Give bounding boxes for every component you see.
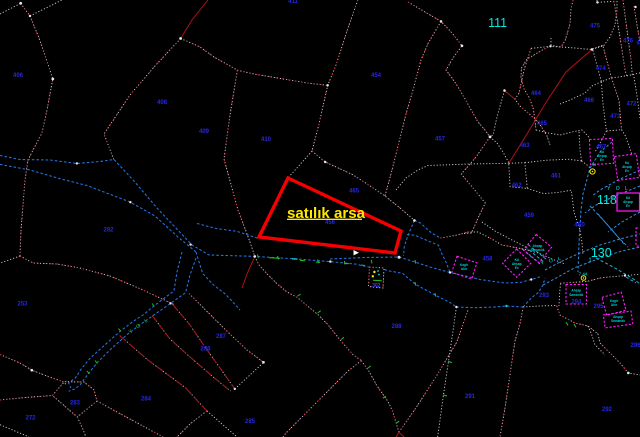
svg-text:288: 288 — [391, 324, 402, 330]
svg-text:285: 285 — [245, 419, 256, 425]
svg-text:295: 295 — [593, 304, 604, 310]
svg-text:111: 111 — [488, 16, 507, 30]
svg-text:467: 467 — [596, 145, 607, 151]
svg-text:454: 454 — [371, 73, 382, 79]
svg-text:408: 408 — [157, 100, 168, 106]
svg-text:465: 465 — [537, 121, 548, 127]
svg-text:461: 461 — [551, 174, 562, 180]
svg-text:292: 292 — [602, 407, 613, 413]
svg-text:296: 296 — [630, 343, 640, 349]
svg-text:476: 476 — [623, 38, 634, 44]
svg-text:283: 283 — [70, 401, 81, 407]
svg-text:465: 465 — [349, 189, 360, 195]
svg-text:45: 45 — [592, 162, 597, 167]
svg-text:466: 466 — [584, 98, 595, 104]
svg-text:473: 473 — [610, 114, 621, 120]
svg-text:Samanlık: Samanlık — [611, 319, 625, 323]
svg-text:Ev: Ev — [625, 169, 629, 173]
svg-text:118: 118 — [597, 193, 617, 207]
svg-text:293: 293 — [539, 293, 550, 299]
svg-text:Ev: Ev — [626, 204, 630, 208]
svg-text:Y O L: Y O L — [607, 186, 630, 192]
svg-text:462: 462 — [512, 183, 523, 189]
svg-text:294: 294 — [571, 300, 582, 306]
svg-text:130: 130 — [591, 246, 612, 260]
svg-text:411: 411 — [288, 0, 298, 5]
svg-text:475: 475 — [590, 23, 601, 29]
svg-text:458: 458 — [482, 257, 493, 263]
svg-text:460: 460 — [574, 222, 585, 229]
svg-text:459: 459 — [524, 213, 535, 219]
svg-text:253: 253 — [17, 302, 28, 308]
svg-text:406: 406 — [13, 73, 24, 79]
svg-text:Ev: Ev — [515, 266, 519, 270]
svg-text:Samanlık: Samanlık — [569, 293, 583, 297]
svg-text:282: 282 — [103, 228, 114, 234]
svg-text:287: 287 — [216, 334, 227, 340]
svg-text:Ahır: Ahır — [611, 303, 618, 307]
svg-text:463: 463 — [520, 143, 531, 149]
svg-text:464: 464 — [531, 91, 542, 97]
svg-text:410: 410 — [261, 137, 272, 143]
svg-text:Ahır: Ahır — [461, 267, 468, 271]
svg-text:474: 474 — [596, 66, 607, 72]
svg-text:472: 472 — [626, 101, 637, 107]
svg-text:286: 286 — [200, 347, 211, 353]
svg-text:272: 272 — [25, 416, 36, 422]
svg-text:284: 284 — [141, 397, 152, 403]
svg-text:Ahşap: Ahşap — [571, 289, 581, 293]
svg-text:291: 291 — [465, 394, 476, 400]
svg-text:Samanlık: Samanlık — [531, 248, 545, 252]
svg-text:4: 4 — [636, 41, 640, 47]
svg-text:457: 457 — [435, 137, 446, 143]
svg-text:Ev: Ev — [600, 158, 604, 162]
svg-text:409: 409 — [199, 129, 210, 135]
svg-text:302: 302 — [372, 283, 381, 289]
